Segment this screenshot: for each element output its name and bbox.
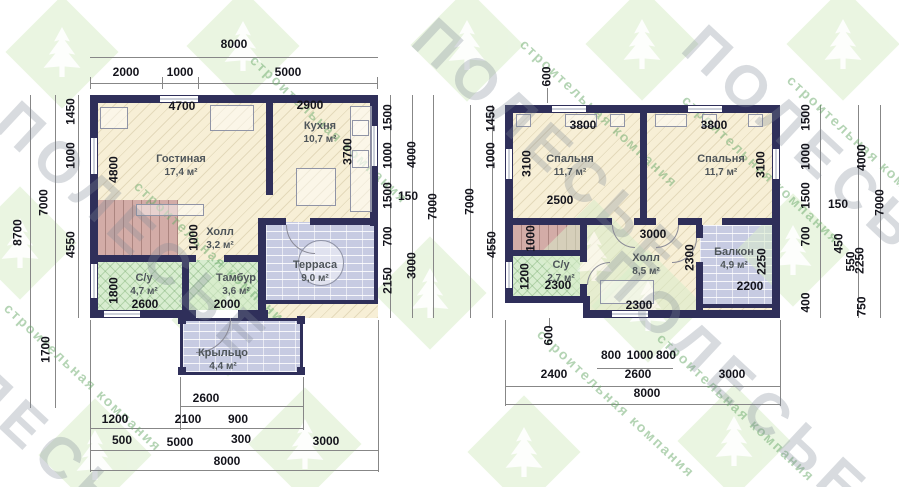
dimension-line xyxy=(90,450,378,451)
terrace-rail xyxy=(374,222,378,304)
porch-post xyxy=(297,367,305,375)
wall xyxy=(678,218,702,225)
room-name: С/у xyxy=(552,259,569,271)
extension-line xyxy=(505,320,506,406)
room-name: Тамбур xyxy=(216,272,256,284)
room-area: 10,7 м² xyxy=(304,134,337,145)
dim-label: 4550 xyxy=(65,217,78,273)
dim-label: 2400 xyxy=(526,368,582,381)
room-area: 8,5 м² xyxy=(632,266,659,277)
dim-label: 4550 xyxy=(486,217,499,273)
terrace-rail xyxy=(266,300,378,304)
dim-label: 4700 xyxy=(154,100,210,113)
dim-label: 8000 xyxy=(619,387,675,400)
room-bedroom-2: Спальня11,7 м² xyxy=(676,153,766,179)
room-name: С/у xyxy=(135,272,152,284)
dimension-line xyxy=(180,406,303,407)
room-area: 3,2 м² xyxy=(206,240,233,251)
room-name: Гостиная xyxy=(156,153,206,165)
wall xyxy=(722,218,780,225)
room-name: Терраса xyxy=(293,259,337,271)
dim-label: 3000 xyxy=(406,238,419,294)
dim-label: 1000 xyxy=(65,128,78,184)
dim-label: 2000 xyxy=(199,298,255,311)
porch-post xyxy=(297,316,305,324)
tick xyxy=(90,77,91,89)
room-tambour: Тамбур3,6 м² xyxy=(191,272,281,298)
stove xyxy=(352,150,369,168)
dimension-line xyxy=(90,57,378,58)
dim-label: 1000 xyxy=(485,128,498,184)
dim-label: 300 xyxy=(213,433,269,446)
room-name: Крыльцо xyxy=(198,347,248,359)
dim-label: 150 xyxy=(810,198,866,211)
room-name: Спальня xyxy=(697,153,745,165)
dim-label: 2000 xyxy=(98,66,154,79)
room-area: 11,7 м² xyxy=(554,167,586,178)
dimension-line xyxy=(90,428,303,429)
armchair xyxy=(100,107,128,129)
dim-label: 2600 xyxy=(610,368,666,381)
fir-tree-icon xyxy=(814,15,872,73)
dim-label: 7000 xyxy=(874,175,887,231)
dim-label: 4000 xyxy=(856,130,869,186)
room-area: 17,4 м² xyxy=(165,167,198,178)
dim-label: 3000 xyxy=(298,435,354,448)
tick xyxy=(377,77,378,89)
dim-label: 4000 xyxy=(406,127,419,183)
dim-label: 8700 xyxy=(12,205,25,261)
room-wc-1f: С/у4,7 м² xyxy=(99,272,189,298)
extension-line xyxy=(303,377,304,430)
window xyxy=(688,106,722,112)
dim-label: 400 xyxy=(800,275,813,331)
kitchen-table xyxy=(296,168,336,206)
dim-label: 5000 xyxy=(152,436,208,449)
dim-label: 750 xyxy=(856,279,869,335)
dim-label: 7000 xyxy=(427,179,440,235)
dim-label: 4800 xyxy=(108,142,121,198)
dim-label: 5000 xyxy=(260,66,316,79)
balcony-rail xyxy=(700,304,780,308)
room-bedroom-1: Спальня11,7 м² xyxy=(525,153,615,179)
wall xyxy=(696,225,703,238)
dim-label: 3800 xyxy=(686,119,742,132)
wall xyxy=(266,95,273,195)
room-hall-1f: Холл3,2 м² xyxy=(175,226,265,252)
logo-diamond xyxy=(467,395,580,487)
room-area: 3,6 м² xyxy=(222,286,249,297)
room-name: Холл xyxy=(206,226,234,238)
wall xyxy=(266,218,286,225)
dim-label: 700 xyxy=(800,209,813,265)
floor-plan-sheet: ПОЛЕСЬЕ ПОЛЕСЬЕ ПОЛЕСЬЕ ПОЛЕСЬЕ ПОЛЕСЬЕ … xyxy=(0,0,899,487)
room-area: 4,4 м² xyxy=(209,361,236,372)
window xyxy=(91,264,97,298)
fir-tree-icon xyxy=(495,423,553,481)
room-area: 9,0 м² xyxy=(301,273,328,284)
dim-label: 8000 xyxy=(206,38,262,51)
sofa xyxy=(210,105,254,131)
dim-label: 2600 xyxy=(178,392,234,405)
dim-label: 8000 xyxy=(199,455,255,468)
dim-label: 3000 xyxy=(625,228,681,241)
room-area: 11,7 м² xyxy=(705,167,737,178)
room-kitchen: Кухня10,7 м² xyxy=(275,120,365,146)
room-name: Холл xyxy=(632,252,660,264)
fir-tree-icon xyxy=(613,15,671,73)
wall xyxy=(310,218,378,225)
dim-label: 600 xyxy=(543,308,556,364)
room-area: 2,7 м² xyxy=(547,273,574,284)
extension-line xyxy=(378,320,379,472)
room-living: Гостиная17,4 м² xyxy=(136,153,226,179)
room-area: 4,7 м² xyxy=(130,286,157,297)
dim-label: 2500 xyxy=(532,194,588,207)
dim-label: 2100 xyxy=(160,413,216,426)
room-name: Спальня xyxy=(546,153,594,165)
window xyxy=(506,262,512,288)
dim-label: 600 xyxy=(541,49,554,105)
fir-tree-icon xyxy=(33,23,91,81)
room-name: Кухня xyxy=(304,120,336,132)
room-porch: Крыльцо4,4 м² xyxy=(178,347,268,373)
wardrobe xyxy=(655,114,687,127)
dim-label: 2200 xyxy=(722,280,778,293)
dim-label: 2600 xyxy=(117,298,173,311)
dim-label: 3800 xyxy=(555,119,611,132)
dim-label: 7000 xyxy=(38,175,51,231)
room-balcony: Балкон4,9 м² xyxy=(689,246,779,272)
room-area: 4,9 м² xyxy=(720,260,747,271)
dim-label: 2300 xyxy=(611,299,667,312)
room-hall-2f: Холл8,5 м² xyxy=(601,252,691,278)
room-name: Балкон xyxy=(714,246,754,258)
dimension-line xyxy=(90,470,378,471)
dim-label: 3000 xyxy=(704,368,760,381)
dim-label: 800 xyxy=(638,349,694,362)
dim-label: 1700 xyxy=(40,322,53,378)
dim-label: 1200 xyxy=(87,413,143,426)
dim-label: 7000 xyxy=(464,174,477,230)
dim-label: 2900 xyxy=(282,99,338,112)
dim-label: 500 xyxy=(94,434,150,447)
dim-label: 1000 xyxy=(152,66,208,79)
wall xyxy=(505,250,587,256)
dim-label: 900 xyxy=(210,413,266,426)
wardrobe xyxy=(610,114,625,127)
room-wc-2f: С/у2,7 м² xyxy=(516,259,606,285)
dim-label: 2150 xyxy=(382,253,395,309)
dimension-line xyxy=(90,83,378,84)
room-terrace: Терраса9,0 м² xyxy=(270,259,360,285)
